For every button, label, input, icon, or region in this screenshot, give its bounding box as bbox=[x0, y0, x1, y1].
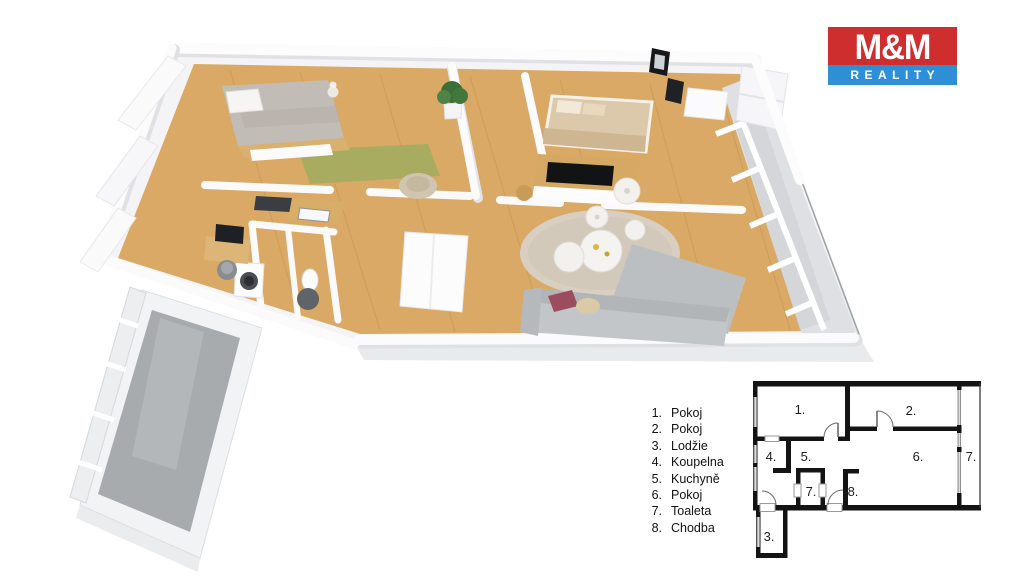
logo-title: M&M bbox=[855, 28, 931, 64]
tv-screen bbox=[546, 162, 614, 186]
floor-plan-2d-schematic: 1. 2. 4. 5. 6. 7. 8. 7. 3. bbox=[750, 375, 1024, 576]
kitchen-island bbox=[298, 208, 330, 222]
legend-label: Pokoj bbox=[671, 405, 702, 421]
toilet bbox=[302, 269, 318, 291]
legend-label: Pokoj bbox=[671, 487, 702, 503]
beige-pillow bbox=[576, 298, 600, 314]
plan-label-room6: 6. bbox=[913, 449, 924, 464]
legend-number: 2. bbox=[640, 421, 662, 437]
plan-label-room1: 1. bbox=[795, 402, 806, 417]
picture-frame bbox=[665, 78, 684, 104]
mm-reality-logo: M&M REALITY bbox=[828, 27, 957, 85]
legend-number: 1. bbox=[640, 405, 662, 421]
legend-item: 6. Pokoj bbox=[640, 487, 724, 503]
pillow bbox=[556, 100, 582, 114]
plant-pot bbox=[444, 103, 462, 119]
console-table bbox=[684, 88, 728, 120]
legend-label: Kuchyně bbox=[671, 471, 720, 487]
legend-item: 7. Toaleta bbox=[640, 503, 724, 519]
plan-label-room8: 8. bbox=[848, 484, 859, 499]
logo-subtitle: REALITY bbox=[845, 69, 940, 81]
plan-room-labels: 1. 2. 4. 5. 6. 7. 8. 7. 3. bbox=[764, 402, 977, 544]
monitor bbox=[215, 224, 244, 244]
legend-label: Pokoj bbox=[671, 421, 702, 437]
plan-label-room5: 5. bbox=[801, 449, 812, 464]
legend-item: 8. Chodba bbox=[640, 520, 724, 536]
side-stool bbox=[516, 185, 532, 201]
pillow bbox=[582, 103, 606, 116]
plan-doors bbox=[760, 411, 893, 512]
legend-item: 4. Koupelna bbox=[640, 454, 724, 470]
legend-number: 5. bbox=[640, 471, 662, 487]
legend-number: 8. bbox=[640, 520, 662, 536]
room-legend: 1. Pokoj 2. Pokoj 3. Lodžie 4. Koupelna … bbox=[640, 405, 724, 536]
plan-label-room3: 3. bbox=[764, 529, 775, 544]
plan-walls bbox=[753, 381, 981, 558]
plan-label-room7-toilet: 7. bbox=[806, 484, 817, 499]
legend-label: Chodba bbox=[671, 520, 715, 536]
coffee-table bbox=[580, 230, 622, 272]
plan-label-room2: 2. bbox=[906, 403, 917, 418]
logo-blue-box: REALITY bbox=[828, 65, 957, 85]
legend-item: 3. Lodžie bbox=[640, 438, 724, 454]
legend-number: 7. bbox=[640, 503, 662, 519]
legend-label: Lodžie bbox=[671, 438, 708, 454]
legend-label: Koupelna bbox=[671, 454, 724, 470]
legend-item: 2. Pokoj bbox=[640, 421, 724, 437]
real-estate-floorplan-image: M&M REALITY 1. Pokoj 2. Pokoj 3. Lodžie … bbox=[0, 0, 1024, 576]
coffee-table bbox=[554, 242, 584, 272]
legend-number: 6. bbox=[640, 487, 662, 503]
legend-item: 5. Kuchyně bbox=[640, 471, 724, 487]
logo-red-box: M&M bbox=[828, 27, 957, 65]
legend-number: 3. bbox=[640, 438, 662, 454]
legend-label: Toaleta bbox=[671, 503, 711, 519]
legend-number: 4. bbox=[640, 454, 662, 470]
bath-rug bbox=[297, 288, 319, 310]
plan-label-room4: 4. bbox=[766, 449, 777, 464]
plan-label-room7-right: 7. bbox=[966, 449, 977, 464]
pendant-lamp bbox=[625, 220, 645, 240]
legend-item: 1. Pokoj bbox=[640, 405, 724, 421]
pillow bbox=[226, 89, 263, 113]
kitchen-appliances bbox=[254, 196, 292, 212]
